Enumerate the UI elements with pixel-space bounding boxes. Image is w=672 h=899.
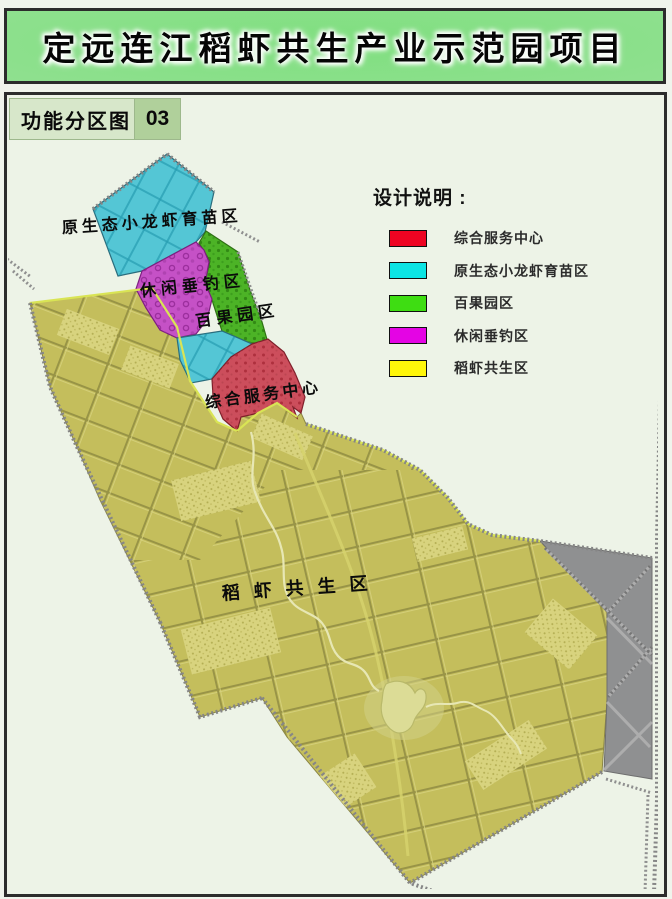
legend-row: 原生态小龙虾育苗区 xyxy=(368,255,658,288)
map-sheet-number: 03 xyxy=(135,98,181,140)
legend-title: 设计说明 : xyxy=(373,183,658,210)
map-header: 功能分区图 03 xyxy=(9,98,181,140)
legend-row: 综合服务中心 xyxy=(368,222,658,255)
legend-swatch-rice-shrimp xyxy=(389,360,427,377)
legend-label-rice-shrimp: 稻虾共生区 xyxy=(454,358,529,378)
legend: 设计说明 : 综合服务中心 原生态小龙虾育苗区 百果园区 休闲垂钓区 稻虾共生区 xyxy=(368,183,658,385)
legend-swatch-leisure-fishing xyxy=(389,327,427,344)
legend-label-crayfish-nursery: 原生态小龙虾育苗区 xyxy=(454,261,589,281)
legend-swatch-fruit-orchard xyxy=(389,295,427,312)
legend-row: 百果园区 xyxy=(368,287,658,320)
legend-label-service-center: 综合服务中心 xyxy=(454,228,544,248)
map-header-label: 功能分区图 xyxy=(9,98,135,140)
legend-label-fruit-orchard: 百果园区 xyxy=(454,293,514,313)
legend-label-leisure-fishing: 休闲垂钓区 xyxy=(454,326,529,346)
zoning-plan-page: 定远连江稻虾共生产业示范园项目 功能分区图 03 xyxy=(0,0,672,899)
legend-row: 稻虾共生区 xyxy=(368,352,658,385)
legend-swatch-service-center xyxy=(389,230,427,247)
legend-swatch-crayfish-nursery xyxy=(389,262,427,279)
legend-row: 休闲垂钓区 xyxy=(368,320,658,353)
